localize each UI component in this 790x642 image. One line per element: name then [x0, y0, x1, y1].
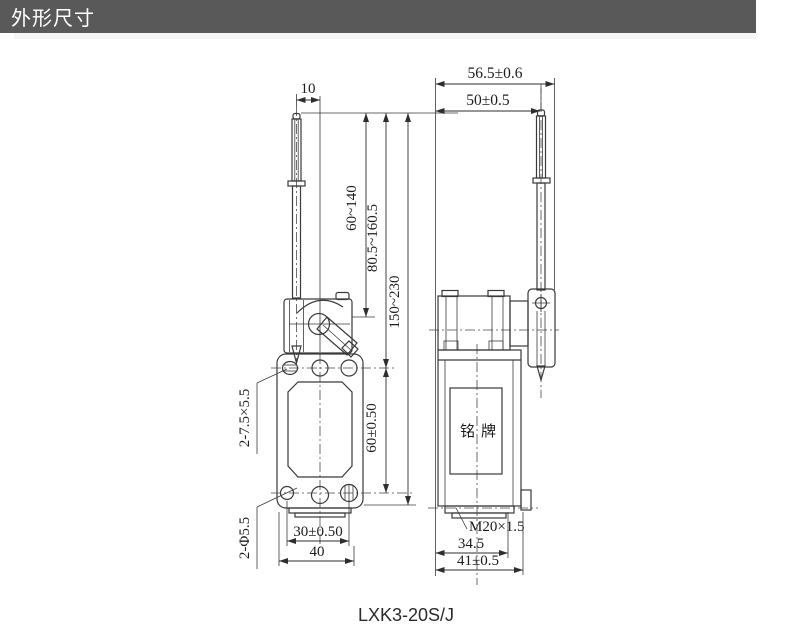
rotary-head-side: [438, 289, 555, 367]
page: 外形尺寸: [0, 0, 790, 642]
base-step-1-side: [445, 506, 514, 513]
header-bar: 外形尺寸: [0, 0, 756, 33]
dim-travel-range-3: 150~230: [387, 275, 403, 328]
dim-mount-hole-v-spacing: 60±0.50: [364, 403, 380, 452]
head-side-boss: [510, 301, 528, 346]
switch-body-side: 铭牌: [438, 350, 531, 518]
dim-travel-range-1: 60~140: [344, 185, 360, 231]
header-shadow-strip: [14, 33, 756, 39]
dim-lever-offset: 10: [301, 81, 316, 97]
dim-base-width: 34.5: [458, 536, 484, 552]
dim-rod-offset: 50±0.5: [466, 92, 510, 109]
lever-clamp-arm: [317, 317, 357, 355]
rod-clamp-collar-side: [533, 178, 550, 183]
lever-clamp-block: [528, 289, 555, 367]
rotary-head: [284, 293, 358, 364]
dim-travel-range-2: 80.5~160.5: [365, 204, 381, 272]
page-title: 外形尺寸: [0, 2, 95, 31]
dim-overall-width: 56.5±0.6: [467, 65, 522, 82]
side-tab: [521, 490, 531, 510]
dimension-drawing: 10 60~140 80.5~160.5 150~230 60±0.50 30±…: [0, 0, 790, 642]
front-view-dimensions: 10 60~140 80.5~160.5 150~230 60±0.50 30±…: [237, 81, 458, 569]
nameplate-label: 铭牌: [460, 423, 502, 440]
dim-mount-hole-h-spacing: 30±0.50: [293, 524, 342, 540]
side-view: 铭牌 56.5±0.6 50±0.5 M20×1.5 34.5: [428, 65, 559, 585]
dim-slot-spec: 2-7.5×5.5: [237, 389, 253, 447]
base-step-2: [295, 513, 345, 517]
dim-hole-spec: 2-Φ5.5: [237, 517, 253, 559]
front-view: 10 60~140 80.5~160.5 150~230 60±0.50 30±…: [237, 81, 458, 569]
dim-thread-spec: M20×1.5: [469, 519, 525, 535]
model-label: LXK3-20S/J: [358, 605, 454, 625]
dim-base-overall-width: 41±0.5: [457, 553, 499, 569]
lever-rod-side: [533, 88, 550, 380]
dim-body-width: 40: [310, 544, 325, 560]
